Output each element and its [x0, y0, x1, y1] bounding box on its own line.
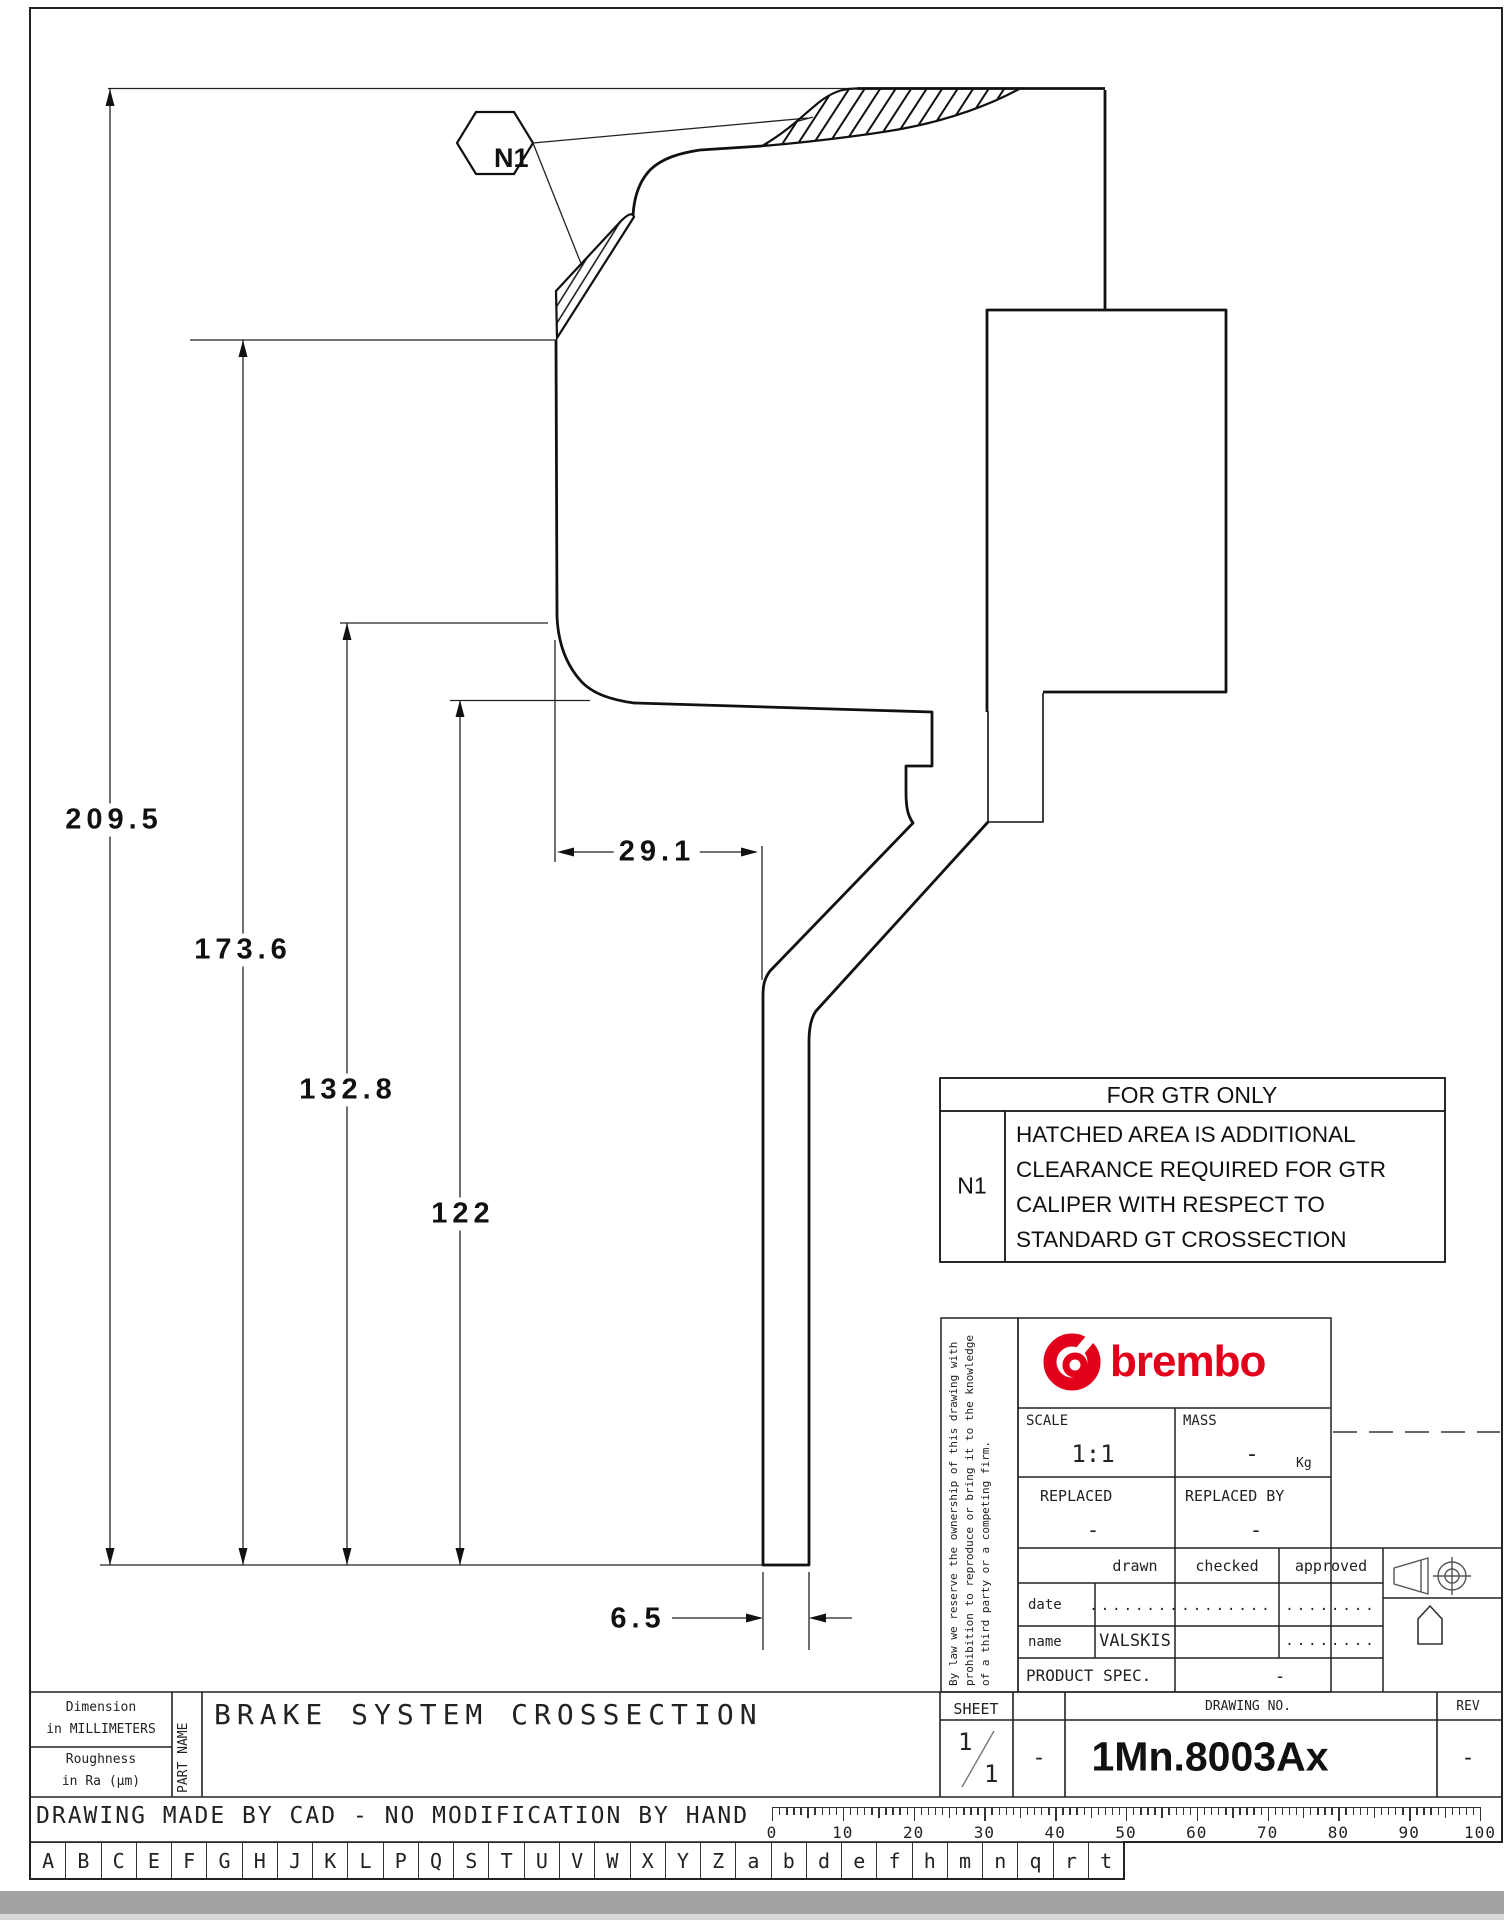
hatch-area-lower: [556, 214, 634, 338]
part-name-label: PART NAME: [176, 1697, 191, 1793]
date-approved: ........: [1285, 1598, 1376, 1614]
revision-letter-cell: A: [31, 1843, 66, 1878]
ruler-tick: [977, 1807, 978, 1815]
revision-letter-cell: m: [948, 1843, 983, 1878]
ruler-tick: [1275, 1807, 1276, 1815]
ruler-label: 90: [1399, 1823, 1420, 1842]
revision-letter-cell: e: [842, 1843, 877, 1878]
scan-edge-bottom-light: [0, 1914, 1504, 1920]
ruler-tick: [1466, 1807, 1467, 1815]
ruler-tick: [1069, 1807, 1070, 1815]
drawn-label: drawn: [1112, 1557, 1157, 1575]
revision-letter-cell: T: [489, 1843, 524, 1878]
ruler-tick: [1324, 1807, 1325, 1815]
ruler-tick: [1395, 1807, 1396, 1815]
revision-letter-cell: C: [102, 1843, 137, 1878]
ruler-tick: [843, 1807, 844, 1821]
note-line: CALIPER WITH RESPECT TO: [1016, 1187, 1386, 1222]
revision-letter-cell: d: [807, 1843, 842, 1878]
ruler-tick: [1430, 1807, 1431, 1815]
drawing-no-label: DRAWING NO.: [1205, 1699, 1291, 1714]
rev-label: REV: [1456, 1699, 1479, 1714]
brembo-wordmark: brembo: [1110, 1337, 1265, 1387]
ruler-label: 20: [903, 1823, 924, 1842]
ruler-tick: [1084, 1807, 1085, 1815]
revision-letter-cell: Y: [666, 1843, 701, 1878]
name-label: name: [1028, 1634, 1062, 1650]
dimension-web: 6.5: [605, 1603, 670, 1636]
ruler-tick: [1331, 1807, 1332, 1815]
projection-symbol-icon: [1394, 1557, 1471, 1595]
ruler-tick: [892, 1807, 893, 1815]
ruler-tick: [935, 1807, 936, 1815]
ruler-tick: [1268, 1807, 1269, 1821]
ruler-tick: [1367, 1807, 1368, 1815]
revision-letter-cell: F: [172, 1843, 207, 1878]
ruler-tick: [1246, 1807, 1247, 1815]
ruler-tick: [786, 1807, 787, 1815]
revision-letter-cell: t: [1089, 1843, 1123, 1878]
date-label: date: [1028, 1597, 1062, 1613]
ruler-tick: [1105, 1807, 1106, 1815]
ruler-tick: [1168, 1807, 1169, 1815]
ruler-tick: [984, 1807, 985, 1821]
dim-note-line1: Dimension: [66, 1700, 136, 1715]
replaced-label: REPLACED: [1040, 1487, 1112, 1505]
ruler-tick: [1345, 1807, 1346, 1815]
ruler-label: 100: [1464, 1823, 1496, 1842]
ruler-tick: [1076, 1807, 1077, 1815]
scale-label: SCALE: [1026, 1413, 1068, 1429]
note-title: FOR GTR ONLY: [1107, 1082, 1278, 1109]
ruler-tick: [1438, 1807, 1439, 1815]
ruler-tick: [928, 1807, 929, 1815]
ruler-tick: [1423, 1807, 1424, 1815]
dimension-width-top: 29.1: [614, 836, 700, 869]
ruler-tick: [1147, 1807, 1148, 1815]
ruler-label: 30: [974, 1823, 995, 1842]
scale-ruler: 0102030405060708090100: [772, 1807, 1482, 1841]
ruler-tick: [1183, 1807, 1184, 1815]
ruler-tick: [1020, 1807, 1021, 1818]
sheet-numerator: 1: [958, 1728, 972, 1756]
ruler-tick: [800, 1807, 801, 1815]
revision-letter-cell: L: [348, 1843, 383, 1878]
ruler-tick: [1473, 1807, 1474, 1815]
replaced-value: -: [1087, 1518, 1099, 1542]
ruler-tick: [1041, 1807, 1042, 1815]
note-line: STANDARD GT CROSSECTION: [1016, 1222, 1386, 1257]
name-approved: ........: [1285, 1633, 1376, 1649]
ruler-tick: [850, 1807, 851, 1815]
ruler-tick: [1048, 1807, 1049, 1815]
ruler-tick: [1126, 1807, 1127, 1821]
revision-letter-cell: f: [877, 1843, 912, 1878]
part-name: BRAKE SYSTEM CROSSECTION: [214, 1698, 763, 1731]
mass-label: MASS: [1183, 1413, 1217, 1429]
dimension-height-low: 132.8: [294, 1074, 402, 1107]
date-checked: ........: [1181, 1598, 1272, 1614]
sheet-denominator: 1: [984, 1760, 998, 1788]
ruler-tick: [991, 1807, 992, 1815]
revision-letter-cell: a: [736, 1843, 771, 1878]
revision-letter-cell: U: [525, 1843, 560, 1878]
ruler-tick: [1416, 1807, 1417, 1815]
ruler-tick: [1289, 1807, 1290, 1815]
approved-label: approved: [1295, 1557, 1367, 1575]
ruler-tick: [1013, 1807, 1014, 1815]
brembo-logo-icon: [1042, 1332, 1102, 1392]
ruler-tick: [956, 1807, 957, 1815]
revision-letter-cell: S: [454, 1843, 489, 1878]
ruler-tick: [1459, 1807, 1460, 1815]
name-drawn: VALSKIS: [1099, 1631, 1171, 1651]
ruler-tick: [878, 1807, 879, 1818]
ruler-tick: [1353, 1807, 1354, 1815]
revision-letters-row: ABCEFGHJKLPQSTUVWXYZabdefhmnqrt: [30, 1842, 1124, 1879]
ruler-tick: [921, 1807, 922, 1815]
ruler-tick: [1374, 1807, 1375, 1818]
cad-note: DRAWING MADE BY CAD - NO MODIFICATION BY…: [36, 1803, 749, 1829]
ruler-tick: [1282, 1807, 1283, 1815]
extension-lines: [100, 89, 858, 1651]
ruler-tick: [1190, 1807, 1191, 1815]
note-text: HATCHED AREA IS ADDITIONAL CLEARANCE REQ…: [1016, 1117, 1386, 1257]
ruler-tick: [1388, 1807, 1389, 1815]
revision-letter-cell: Q: [419, 1843, 454, 1878]
ruler-tick: [807, 1807, 808, 1818]
ruler-tick: [963, 1807, 964, 1815]
date-drawn: ........: [1089, 1598, 1180, 1614]
ruler-tick: [836, 1807, 837, 1815]
ruler-label: 50: [1115, 1823, 1136, 1842]
ruler-tick: [1027, 1807, 1028, 1815]
revision-letter-cell: Z: [701, 1843, 736, 1878]
revision-letter-cell: W: [595, 1843, 630, 1878]
mass-unit: Kg: [1296, 1456, 1312, 1471]
ruler-tick: [1006, 1807, 1007, 1815]
ruler-tick: [1034, 1807, 1035, 1815]
ruler-tick: [1239, 1807, 1240, 1815]
ruler-tick: [1317, 1807, 1318, 1815]
checked-label: checked: [1195, 1557, 1258, 1575]
ruler-tick: [1161, 1807, 1162, 1818]
ruler-tick: [1062, 1807, 1063, 1815]
ruler-tick: [857, 1807, 858, 1815]
ruler-tick: [907, 1807, 908, 1815]
ruler-label: 80: [1328, 1823, 1349, 1842]
ruler-tick: [1310, 1807, 1311, 1815]
ruler-tick: [885, 1807, 886, 1815]
ruler-tick: [814, 1807, 815, 1815]
sheet-dash-cell: -: [1032, 1746, 1045, 1771]
ruler-tick: [1197, 1807, 1198, 1821]
ruler-tick: [1338, 1807, 1339, 1821]
ruler-label: 10: [832, 1823, 853, 1842]
revision-letter-cell: q: [1018, 1843, 1053, 1878]
ruler-tick: [1055, 1807, 1056, 1821]
drawing-sheet: N1 209.5 173.6 132.8 122 29.1 6.5 FOR GT…: [0, 0, 1504, 1920]
product-spec-value: -: [1275, 1666, 1286, 1687]
ruler-tick: [829, 1807, 830, 1815]
ruler-tick: [942, 1807, 943, 1815]
ruler-tick: [1119, 1807, 1120, 1815]
ruler-tick: [1211, 1807, 1212, 1815]
revision-letter-cell: G: [207, 1843, 242, 1878]
revision-letter-cell: V: [560, 1843, 595, 1878]
revision-letter-cell: B: [66, 1843, 101, 1878]
mass-value: -: [1245, 1442, 1258, 1467]
ruler-tick: [1296, 1807, 1297, 1815]
revision-letter-cell: X: [631, 1843, 666, 1878]
ruler-tick: [1218, 1807, 1219, 1815]
balloon-label: N1: [494, 143, 529, 174]
ruler-tick: [779, 1807, 780, 1815]
ruler-tick: [949, 1807, 950, 1818]
ruler-label: 0: [767, 1823, 778, 1842]
legal-notice: By law we reserve the ownership of this …: [946, 1324, 1012, 1686]
revision-letter-cell: b: [772, 1843, 807, 1878]
ruler-tick: [999, 1807, 1000, 1815]
ruler-tick: [1112, 1807, 1113, 1815]
ruler-tick: [1360, 1807, 1361, 1815]
ruler-tick: [1204, 1807, 1205, 1815]
roughness-line1: Roughness: [66, 1752, 136, 1767]
roughness-line2: in Ra (μm): [62, 1774, 140, 1789]
revision-letter-cell: P: [384, 1843, 419, 1878]
ruler-tick: [822, 1807, 823, 1815]
dimension-height-mid: 173.6: [189, 934, 297, 967]
ruler-tick: [1452, 1807, 1453, 1815]
ruler-tick: [1176, 1807, 1177, 1815]
ruler-tick: [1402, 1807, 1403, 1815]
ruler-tick: [772, 1807, 773, 1821]
scan-edge-bottom: [0, 1891, 1504, 1914]
ruler-tick: [793, 1807, 794, 1815]
ruler-label: 70: [1257, 1823, 1278, 1842]
ruler-tick: [1261, 1807, 1262, 1815]
hatch-area-upper: [762, 89, 1020, 147]
ruler-tick: [871, 1807, 872, 1815]
note-ref: N1: [957, 1173, 986, 1200]
ruler-tick: [1091, 1807, 1092, 1818]
pentagon-symbol-icon: [1418, 1606, 1442, 1644]
dimension-total-height: 209.5: [60, 804, 168, 837]
ruler-tick: [970, 1807, 971, 1815]
ruler-tick: [1480, 1807, 1481, 1821]
ruler-tick: [1225, 1807, 1226, 1815]
product-spec-label: PRODUCT SPEC.: [1026, 1666, 1151, 1685]
note-line: CLEARANCE REQUIRED FOR GTR: [1016, 1152, 1386, 1187]
ruler-tick: [1133, 1807, 1134, 1815]
ruler-tick: [914, 1807, 915, 1821]
drawing-no-value: 1Mn.8003Ax: [1091, 1734, 1328, 1781]
revision-letter-cell: E: [137, 1843, 172, 1878]
revision-letter-cell: H: [243, 1843, 278, 1878]
dim-note-line2: in MILLIMETERS: [46, 1722, 156, 1737]
scale-value: 1:1: [1071, 1440, 1114, 1468]
revision-letter-cell: K: [313, 1843, 348, 1878]
ruler-tick: [1154, 1807, 1155, 1815]
replaced-by-label: REPLACED BY: [1185, 1487, 1284, 1505]
ruler-tick: [1409, 1807, 1410, 1821]
rev-value: -: [1461, 1746, 1474, 1771]
revision-letter-cell: r: [1054, 1843, 1089, 1878]
replaced-by-value: -: [1250, 1518, 1262, 1542]
revision-letter-cell: J: [278, 1843, 313, 1878]
ruler-tick: [864, 1807, 865, 1815]
dimension-height-base: 122: [426, 1198, 499, 1231]
ruler-label: 60: [1186, 1823, 1207, 1842]
ruler-tick: [1253, 1807, 1254, 1815]
revision-letter-cell: n: [983, 1843, 1018, 1878]
note-line: HATCHED AREA IS ADDITIONAL: [1016, 1117, 1386, 1152]
ruler-tick: [1303, 1807, 1304, 1818]
revision-letter-cell: h: [913, 1843, 948, 1878]
dimension-arrows: [106, 89, 827, 1623]
ruler-tick: [1381, 1807, 1382, 1815]
ruler-label: 40: [1045, 1823, 1066, 1842]
ruler-tick: [1232, 1807, 1233, 1818]
sheet-label: SHEET: [953, 1700, 998, 1718]
ruler-tick: [1445, 1807, 1446, 1818]
brembo-logo: brembo: [1042, 1332, 1265, 1392]
ruler-tick: [899, 1807, 900, 1815]
ruler-tick: [1098, 1807, 1099, 1815]
ruler-tick: [1140, 1807, 1141, 1815]
